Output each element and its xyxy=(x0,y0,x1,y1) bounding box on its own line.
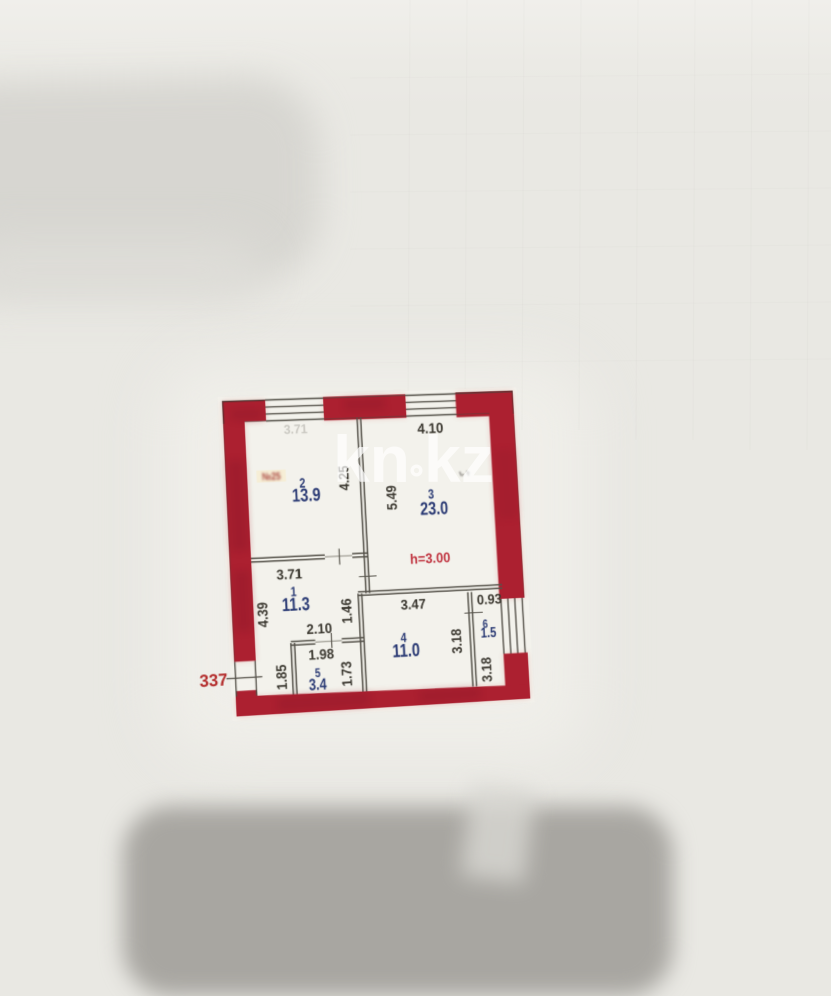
svg-text:kn: kn xyxy=(333,422,410,496)
svg-text:kz: kz xyxy=(424,422,494,496)
